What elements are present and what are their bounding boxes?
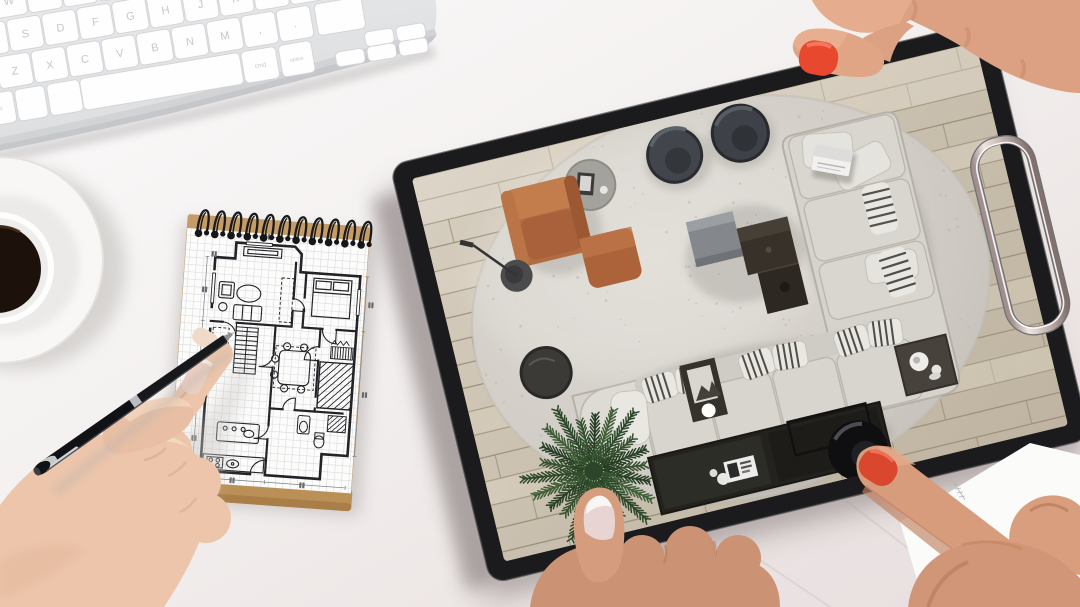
svg-text:M: M — [220, 30, 231, 43]
